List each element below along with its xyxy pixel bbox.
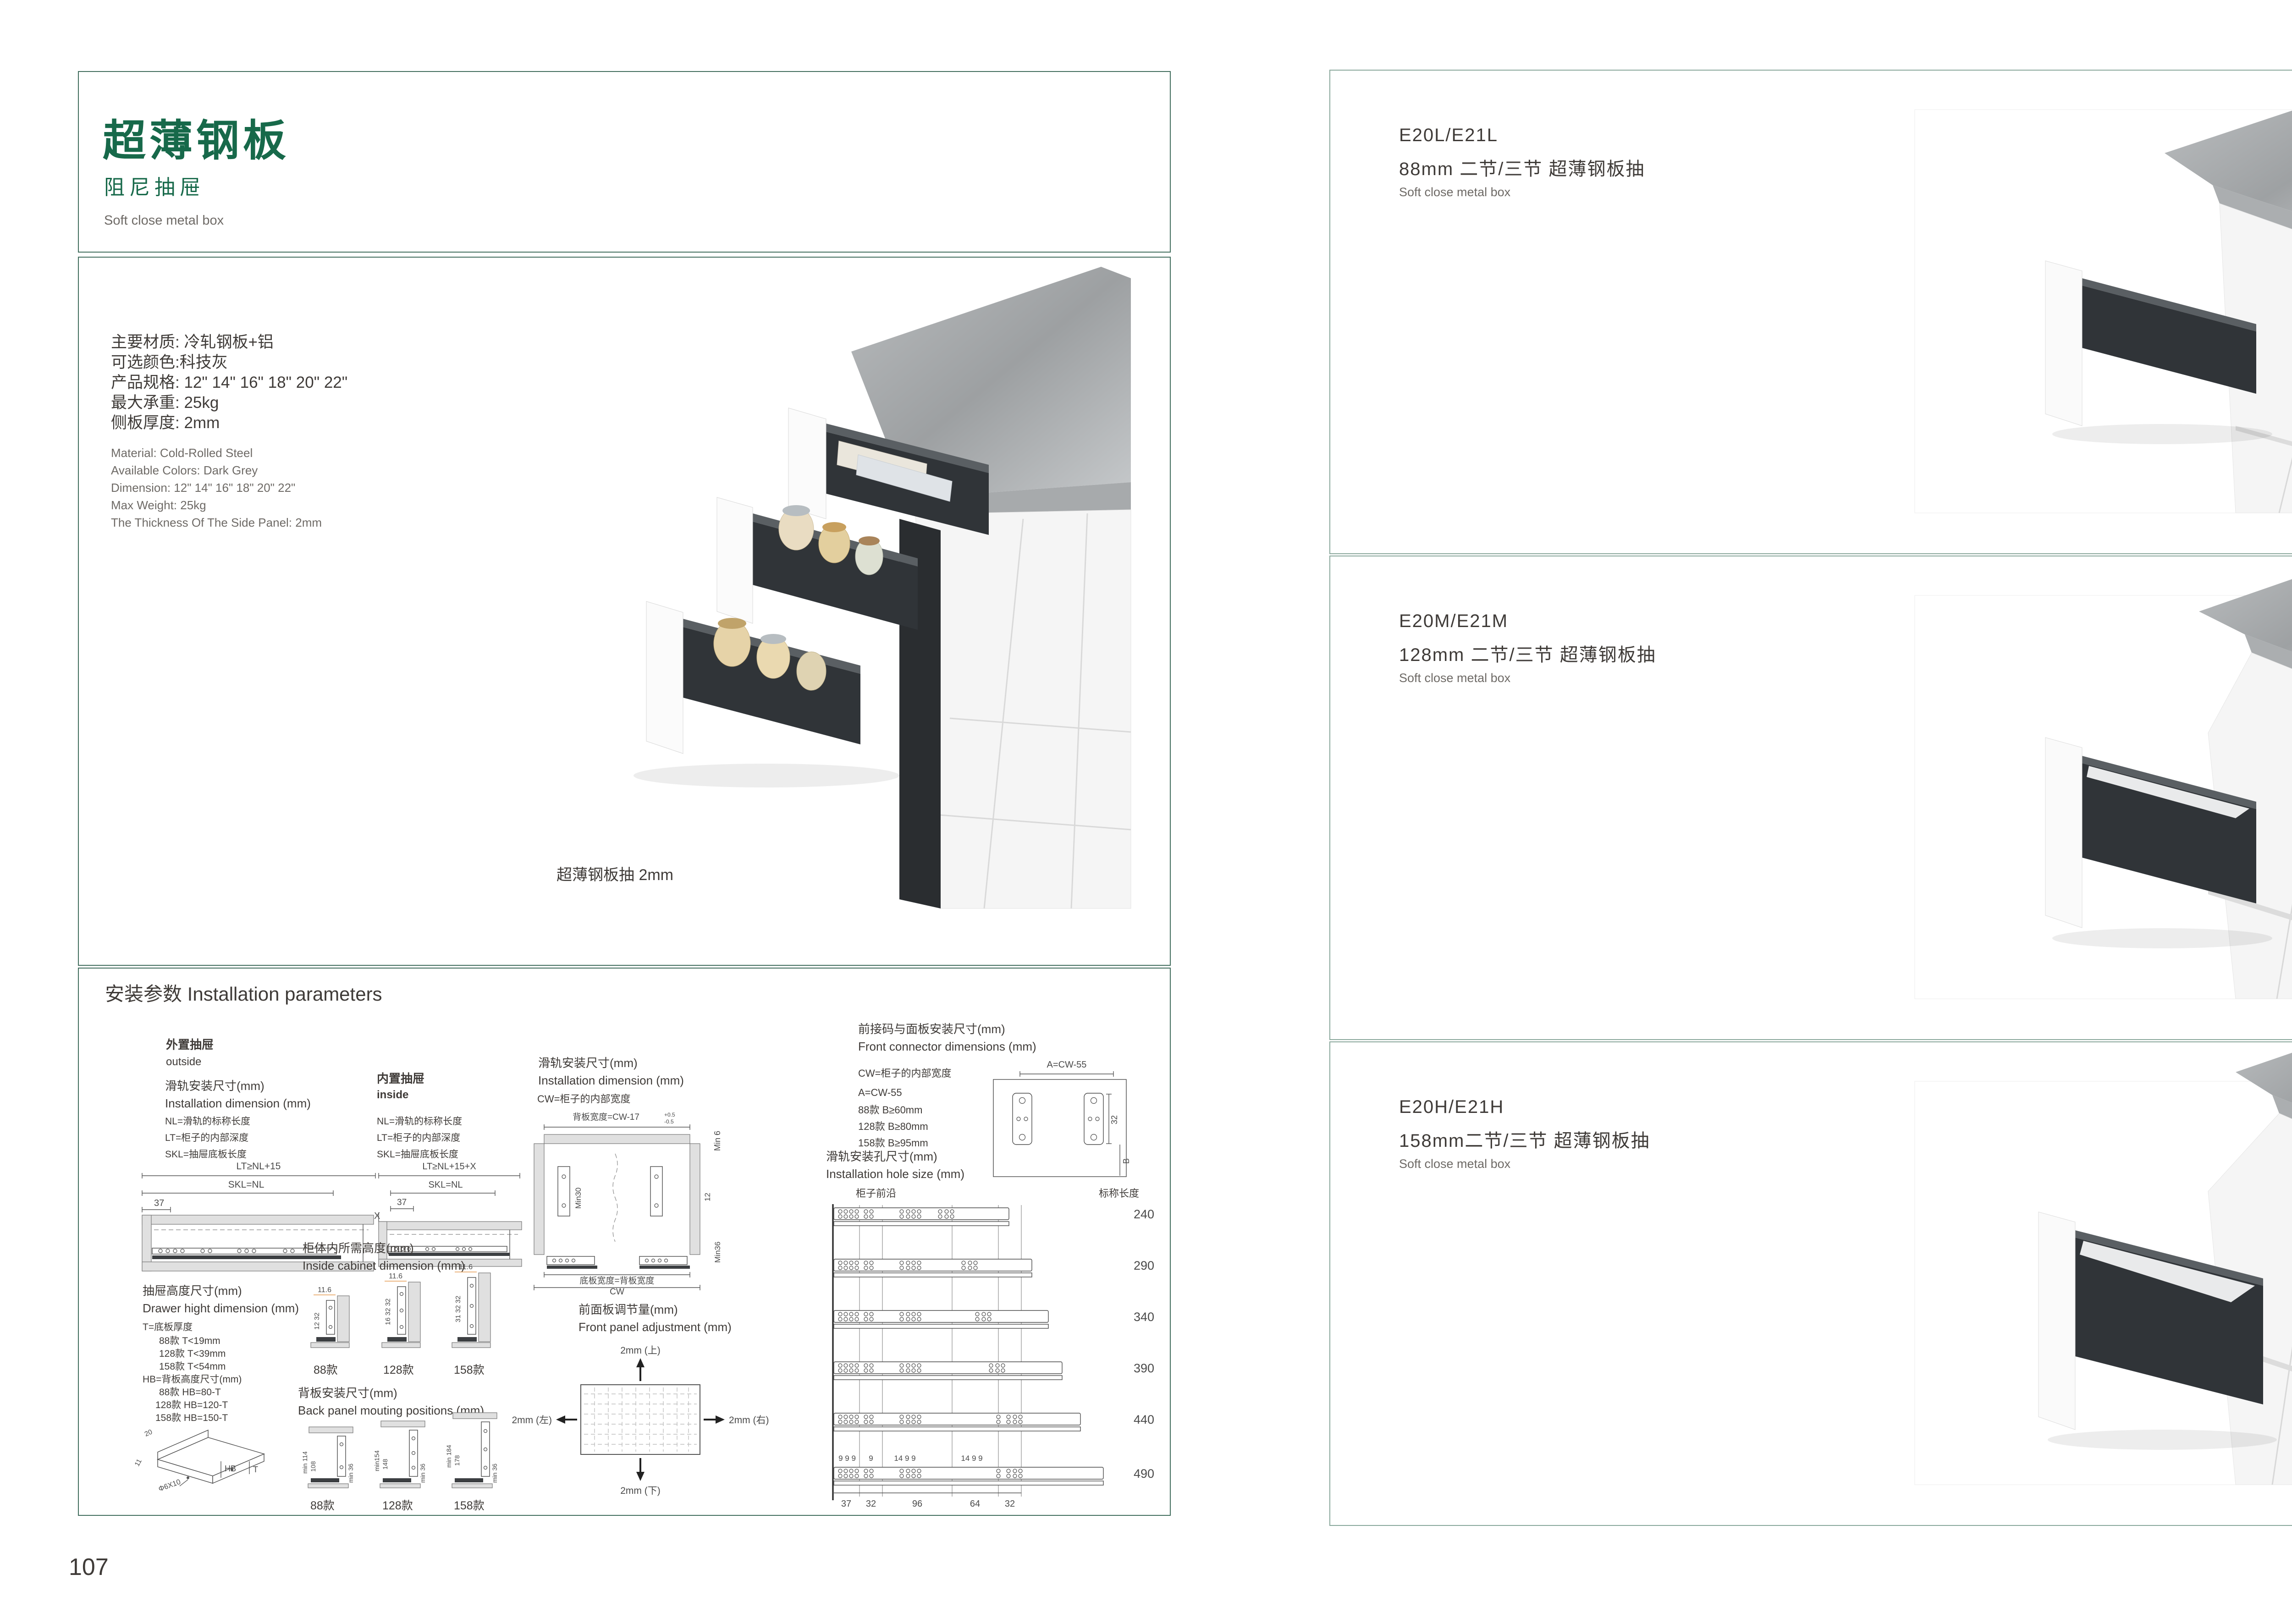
catalog-spread: 超薄钢板 阻尼抽屉 Soft close metal box 主要材质: 冷轧钢… [0, 0, 2292, 1624]
drawer-height-title-en: Drawer hight dimension (mm) [143, 1302, 299, 1316]
variant-caption: 88款 [314, 1364, 338, 1377]
svg-text:CW: CW [610, 1287, 624, 1297]
svg-text:2mm (左): 2mm (左) [512, 1415, 552, 1426]
product-model: E20M/E21M [1399, 611, 1508, 632]
page-subtitle-en: Soft close metal box [104, 213, 224, 228]
inside-cabinet-128: 11.6 16 32 32 [379, 1272, 425, 1354]
width-dim-title-en: Installation dimension (mm) [538, 1074, 684, 1088]
rail-290: 290 [834, 1259, 1154, 1277]
hb-line: HB=背板高度尺寸(mm) [143, 1374, 242, 1385]
rail-340: 340 [834, 1310, 1154, 1328]
svg-text:14 9 9: 14 9 9 [894, 1454, 915, 1463]
product-model: E20H/E21H [1399, 1096, 1504, 1118]
spec-cn-line: 产品规格: 12" 14" 16" 18" 20" 22" [111, 374, 347, 392]
product-photo-88 [1915, 110, 2292, 513]
width-dim-note: CW=柜子的内部宽度 [537, 1093, 631, 1105]
connector-a: A=CW-55 [858, 1087, 902, 1098]
svg-text:Min 6: Min 6 [713, 1131, 722, 1151]
product-desc-en: Soft close metal box [1399, 671, 1510, 685]
drawer-iso-diagram: 20 11 Φ6X10 HB T [134, 1425, 271, 1503]
connector-b1: 88款 B≥60mm [858, 1104, 922, 1116]
variant-caption: 128款 [382, 1499, 413, 1513]
connector-diagram: A=CW-55 32 B [984, 1060, 1135, 1184]
variant-caption: 88款 [310, 1499, 335, 1513]
svg-text:490: 490 [1134, 1467, 1154, 1481]
svg-text:12 32: 12 32 [313, 1312, 321, 1330]
svg-text:32: 32 [866, 1499, 876, 1509]
hb-line: 128款 HB=120-T [155, 1400, 228, 1411]
product-desc-cn: 88mm 二节/三节 超薄钢板抽 [1399, 159, 1645, 180]
spec-cn-line: 主要材质: 冷轧钢板+铝 [111, 333, 274, 352]
inside-cabinet-158: 11.6 31 32 32 [449, 1263, 495, 1354]
t-line: 128款 T<39mm [159, 1349, 226, 1360]
svg-text:min 36: min 36 [419, 1464, 426, 1483]
back-panel-88: min 114 108 min 36 [303, 1425, 355, 1495]
svg-text:HB: HB [225, 1464, 236, 1473]
inside-cabinet-title-en: Inside cabinet dimension (mm) [303, 1259, 465, 1273]
spec-en-line: Available Colors: Dark Grey [111, 464, 258, 478]
front-adjust-title-en: Front panel adjustment (mm) [579, 1321, 732, 1334]
t-line: T=底板厚度 [143, 1322, 193, 1333]
svg-text:240: 240 [1134, 1207, 1154, 1221]
spec-en-line: Material: Cold-Rolled Steel [111, 446, 253, 460]
front-adjust-diagram: 2mm (上) 2mm (下) 2mm (左) 2mm (右) [519, 1338, 757, 1512]
hole-size-diagram: 240 290 340 390 [826, 1203, 1165, 1513]
product-box-e20h: E20H/E21H 158mm二节/三节 超薄钢板抽 Soft close me… [1329, 1041, 2292, 1526]
svg-text:11: 11 [133, 1458, 143, 1468]
hb-line: 88款 HB=80-T [159, 1387, 221, 1398]
svg-text:min 114: min 114 [301, 1451, 309, 1474]
svg-text:min 36: min 36 [491, 1464, 498, 1483]
svg-text:+0.5: +0.5 [664, 1112, 675, 1118]
svg-text:9 9 9: 9 9 9 [838, 1454, 856, 1463]
svg-text:底板宽度=背板宽度: 底板宽度=背板宽度 [579, 1276, 654, 1286]
width-dim-diagram: 背板宽度=CW-17 +0.5 -0.5 Min 6 Min30 12 Min3… [530, 1112, 727, 1295]
rail-490: 490 [834, 1467, 1154, 1485]
svg-text:96: 96 [912, 1499, 922, 1509]
spec-en-line: Dimension: 12" 14" 16" 18" 20" 22" [111, 481, 295, 495]
outside-def: SKL=抽屉底板长度 [165, 1149, 247, 1160]
inside-cabinet-title-cn: 柜体内所需高度(mm) [303, 1242, 414, 1255]
svg-text:Min36: Min36 [713, 1242, 722, 1263]
svg-text:37: 37 [841, 1499, 851, 1509]
product-photo-drawers [537, 303, 1131, 908]
svg-text:178: 178 [453, 1455, 461, 1466]
connector-note: CW=柜子的内部宽度 [858, 1068, 952, 1079]
connector-b3: 158款 B≥95mm [858, 1137, 928, 1149]
connector-title-cn: 前接码与面板安装尺寸(mm) [858, 1023, 1005, 1036]
t-line: 88款 T<19mm [159, 1336, 220, 1347]
svg-text:108: 108 [309, 1461, 317, 1472]
product-desc-en: Soft close metal box [1399, 185, 1510, 199]
outside-def: LT=柜子的内部深度 [165, 1133, 248, 1144]
svg-text:Min30: Min30 [574, 1188, 583, 1209]
inside-def: LT=柜子的内部深度 [377, 1133, 460, 1144]
t-line: 158款 T<54mm [159, 1361, 226, 1372]
svg-text:440: 440 [1134, 1413, 1154, 1426]
svg-text:LT≥NL+15: LT≥NL+15 [237, 1161, 281, 1172]
svg-text:31 32 32: 31 32 32 [454, 1296, 462, 1322]
svg-text:148: 148 [381, 1459, 389, 1470]
outside-dim-title-en: Installation dimension (mm) [165, 1097, 311, 1111]
hole-size-nominal: 标称长度 [1099, 1188, 1139, 1199]
hole-size-front-edge: 柜子前沿 [856, 1188, 896, 1199]
svg-text:37: 37 [397, 1198, 407, 1207]
svg-text:T: T [253, 1465, 258, 1474]
svg-text:12: 12 [703, 1193, 712, 1201]
outside-label-cn: 外置抽屉 [166, 1038, 214, 1052]
product-desc-cn: 128mm 二节/三节 超薄钢板抽 [1399, 644, 1656, 666]
back-panel-158: min 184 178 min 36 [446, 1411, 499, 1495]
svg-text:min 184: min 184 [445, 1445, 452, 1468]
connector-title-en: Front connector dimensions (mm) [858, 1040, 1036, 1054]
product-box-e20l: E20L/E21L 88mm 二节/三节 超薄钢板抽 Soft close me… [1329, 70, 2292, 554]
product-photo-128 [1915, 595, 2292, 999]
product-desc-en: Soft close metal box [1399, 1157, 1510, 1171]
page-number-left: 107 [69, 1554, 109, 1581]
width-dim-title-cn: 滑轨安装尺寸(mm) [538, 1057, 638, 1070]
svg-text:290: 290 [1134, 1259, 1154, 1272]
install-parameters-box: 安装参数 Installation parameters 外置抽屉 outsid… [78, 968, 1171, 1516]
svg-text:SKL=NL: SKL=NL [228, 1179, 264, 1190]
rail-240: 240 [834, 1207, 1154, 1226]
svg-text:64: 64 [970, 1499, 980, 1509]
variant-caption: 158款 [454, 1364, 485, 1377]
svg-text:2mm (下): 2mm (下) [620, 1486, 661, 1496]
front-adjust-title-cn: 前面板调节量(mm) [579, 1303, 678, 1317]
product-box-e20m: E20M/E21M 128mm 二节/三节 超薄钢板抽 Soft close m… [1329, 556, 2292, 1040]
left-header-box: 超薄钢板 阻尼抽屉 Soft close metal box [78, 71, 1171, 253]
photo-caption: 超薄钢板抽 2mm [556, 866, 673, 884]
product-model: E20L/E21L [1399, 125, 1498, 146]
inside-cabinet-88: 11.6 12 32 [308, 1286, 354, 1354]
variant-caption: 158款 [454, 1499, 485, 1513]
svg-text:20: 20 [143, 1428, 154, 1438]
svg-text:背板宽度=CW-17: 背板宽度=CW-17 [573, 1112, 639, 1122]
svg-text:A=CW-55: A=CW-55 [1047, 1060, 1087, 1070]
variant-caption: 128款 [383, 1364, 414, 1377]
svg-text:Φ6X10: Φ6X10 [158, 1478, 182, 1493]
svg-text:14 9 9: 14 9 9 [961, 1454, 982, 1463]
svg-text:32: 32 [1005, 1499, 1015, 1509]
svg-text:-0.5: -0.5 [664, 1118, 674, 1125]
svg-text:11.6: 11.6 [389, 1272, 402, 1280]
svg-text:X: X [374, 1211, 380, 1221]
svg-text:LT≥NL+15+X: LT≥NL+15+X [422, 1162, 476, 1172]
hole-size-title-cn: 滑轨安装孔尺寸(mm) [826, 1150, 937, 1164]
outside-def: NL=滑轨的标称长度 [165, 1116, 250, 1127]
product-desc-cn: 158mm二节/三节 超薄钢板抽 [1399, 1130, 1650, 1151]
svg-text:16 32 32: 16 32 32 [384, 1299, 392, 1325]
inside-label-cn: 内置抽屉 [377, 1072, 424, 1086]
hole-size-title-en: Installation hole size (mm) [826, 1167, 964, 1181]
svg-text:11.6: 11.6 [459, 1263, 473, 1271]
page-title: 超薄钢板 [103, 116, 290, 165]
back-panel-128: min154 148 min 36 [375, 1419, 427, 1495]
svg-text:340: 340 [1134, 1310, 1154, 1324]
svg-text:B: B [1122, 1158, 1131, 1164]
svg-text:390: 390 [1134, 1361, 1154, 1375]
left-content-box: 主要材质: 冷轧钢板+铝 可选颜色:科技灰 产品规格: 12" 14" 16" … [78, 257, 1171, 966]
svg-text:min 36: min 36 [347, 1464, 354, 1483]
outside-dim-title-cn: 滑轨安装尺寸(mm) [165, 1079, 264, 1093]
svg-text:SKL=NL: SKL=NL [428, 1180, 463, 1190]
inside-def: NL=滑轨的标称长度 [377, 1116, 462, 1127]
page-subtitle: 阻尼抽屉 [104, 176, 205, 199]
svg-text:11.6: 11.6 [318, 1286, 331, 1294]
hb-line: 158款 HB=150-T [155, 1413, 228, 1424]
spec-cn-line: 可选颜色:科技灰 [111, 353, 228, 372]
install-title: 安装参数 Installation parameters [105, 983, 382, 1005]
inside-label-en: inside [377, 1089, 408, 1101]
back-panel-title-cn: 背板安装尺寸(mm) [298, 1387, 397, 1400]
drawer-height-title-cn: 抽屉高度尺寸(mm) [143, 1284, 242, 1298]
spec-en-line: Max Weight: 25kg [111, 499, 206, 512]
rail-440: 440 [834, 1413, 1154, 1431]
inside-def: SKL=抽屉底板长度 [377, 1149, 458, 1160]
product-photo-158 [1915, 1081, 2292, 1485]
spec-cn-line: 最大承重: 25kg [111, 394, 219, 412]
svg-text:2mm (右): 2mm (右) [729, 1415, 769, 1426]
outside-label-en: outside [166, 1056, 201, 1068]
connector-b2: 128款 B≥80mm [858, 1121, 928, 1132]
svg-text:37: 37 [154, 1198, 164, 1208]
svg-text:2mm (上): 2mm (上) [620, 1345, 661, 1356]
spec-cn-line: 侧板厚度: 2mm [111, 414, 220, 432]
svg-text:min154: min154 [373, 1450, 380, 1471]
rail-390: 390 [834, 1361, 1154, 1380]
spec-en-line: The Thickness Of The Side Panel: 2mm [111, 516, 322, 530]
svg-text:32: 32 [1110, 1115, 1119, 1124]
svg-text:9: 9 [869, 1454, 873, 1463]
